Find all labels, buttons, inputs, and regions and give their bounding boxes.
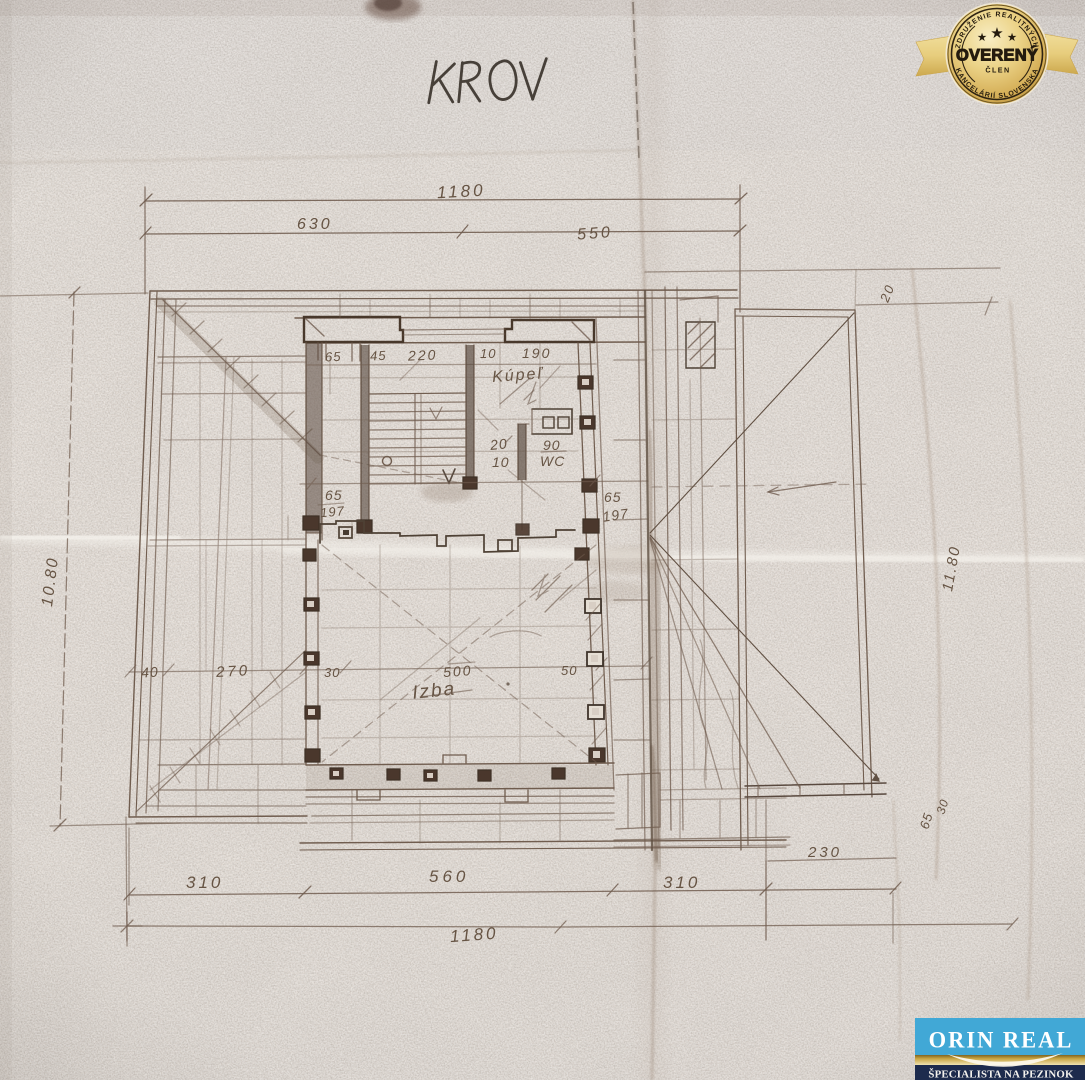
svg-text:★: ★	[977, 32, 987, 44]
svg-text:1180: 1180	[437, 181, 486, 203]
svg-text:★: ★	[990, 25, 1003, 42]
svg-text:WC: WC	[540, 453, 565, 469]
svg-text:10: 10	[492, 454, 510, 470]
svg-text:★: ★	[1007, 32, 1017, 44]
svg-text:10: 10	[480, 346, 496, 361]
svg-text:30: 30	[324, 665, 340, 680]
svg-text:560: 560	[429, 867, 469, 886]
svg-text:500: 500	[443, 662, 473, 680]
svg-text:20: 20	[488, 435, 508, 453]
svg-text:630: 630	[297, 216, 333, 233]
svg-text:65: 65	[604, 489, 622, 505]
svg-text:270: 270	[215, 662, 251, 681]
svg-text:550: 550	[577, 224, 614, 243]
svg-text:40: 40	[141, 664, 159, 681]
svg-text:190: 190	[522, 345, 551, 361]
svg-text:OVERENÝ: OVERENÝ	[956, 46, 1038, 65]
svg-text:ŠPECIALISTA NA PEZINOK: ŠPECIALISTA NA PEZINOK	[928, 1068, 1074, 1080]
svg-text:45: 45	[370, 348, 387, 364]
svg-text:ORIN REAL: ORIN REAL	[929, 1026, 1074, 1053]
svg-text:ČLEN: ČLEN	[985, 66, 1010, 75]
svg-text:310: 310	[663, 873, 700, 892]
svg-text:1180: 1180	[449, 924, 499, 946]
svg-text:65: 65	[325, 349, 342, 365]
svg-text:65: 65	[325, 487, 343, 503]
svg-text:230: 230	[807, 844, 842, 861]
svg-text:220: 220	[407, 347, 438, 364]
svg-text:197: 197	[320, 503, 346, 520]
svg-text:310: 310	[186, 873, 223, 892]
svg-text:50: 50	[561, 663, 577, 678]
